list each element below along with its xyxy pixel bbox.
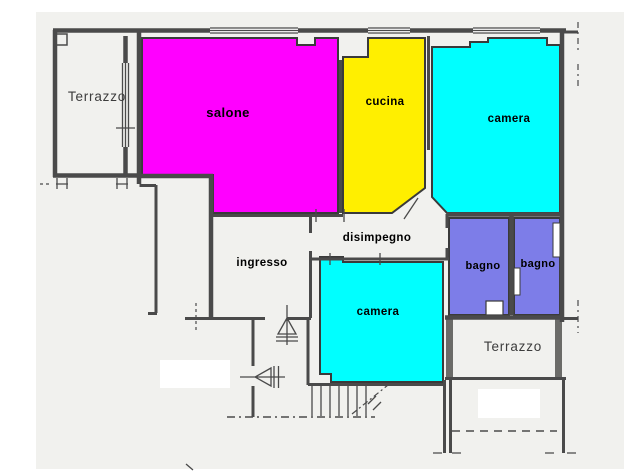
label-cucina: cucina bbox=[366, 96, 405, 108]
erased-area-bottom-right bbox=[478, 389, 540, 418]
label-terrazzo-top-left: Terrazzo bbox=[68, 89, 126, 104]
label-disimpegno: disimpegno bbox=[343, 232, 412, 244]
room-camera-top bbox=[432, 38, 560, 213]
room-camera-bottom bbox=[320, 257, 443, 382]
label-camera-top: camera bbox=[488, 113, 531, 125]
bagno-right-wall-recess bbox=[553, 223, 560, 257]
label-camera-bottom: camera bbox=[357, 306, 400, 318]
bagno-left-door-recess bbox=[486, 301, 503, 315]
bagno-right-door-recess bbox=[514, 268, 520, 295]
label-ingresso: ingresso bbox=[236, 257, 287, 269]
label-salone: salone bbox=[206, 105, 250, 120]
room-cucina bbox=[343, 38, 425, 213]
label-terrazzo-bottom-right: Terrazzo bbox=[484, 339, 542, 354]
top-wall-windows bbox=[210, 28, 540, 34]
floor-plan-canvas: Terrazzo Terrazzo salone cucina camera d… bbox=[0, 0, 634, 475]
label-bagno-left: bagno bbox=[466, 260, 501, 272]
floor-plan-page: Terrazzo Terrazzo salone cucina camera d… bbox=[0, 0, 634, 475]
label-bagno-right: bagno bbox=[521, 258, 556, 270]
erased-area-left bbox=[160, 360, 230, 388]
